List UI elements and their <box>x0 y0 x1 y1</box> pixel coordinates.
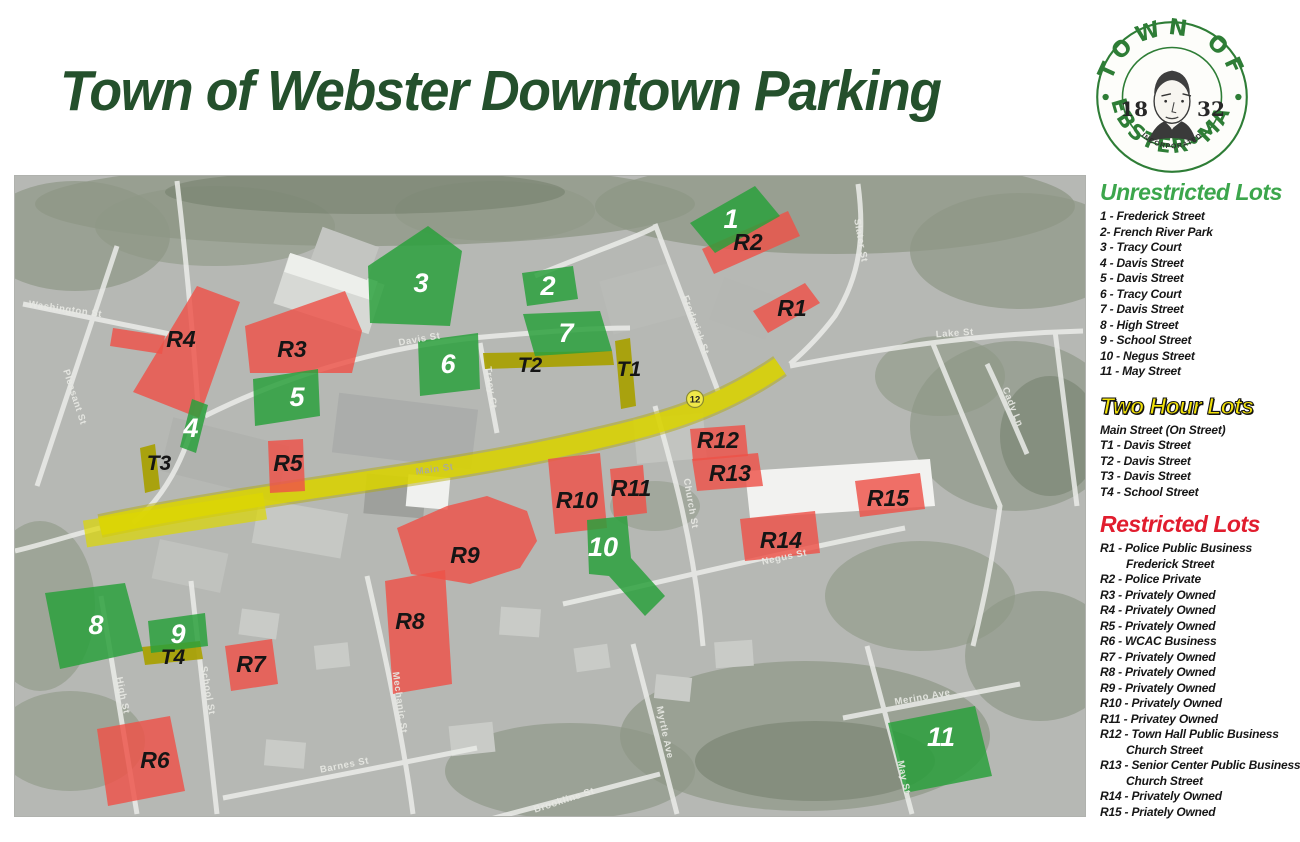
route-12-number: 12 <box>690 395 701 406</box>
seal-year-left: 18 <box>1120 97 1148 121</box>
lot-label-6: 6 <box>440 349 456 379</box>
legend-item: R11 - Privatey Owned <box>1100 712 1298 728</box>
aerial-parking-map: Main St Davis St Tracy Ct Frederick St S… <box>15 176 1085 816</box>
legend-item: 6 - Tracy Court <box>1100 287 1298 303</box>
town-seal-svg: TOWN OF WEBSTER•MASS 18 32 INCORPOR <box>1092 18 1252 176</box>
legend-item: R2 - Police Private <box>1100 572 1298 588</box>
legend-two-hour: Two Hour Lots Main Street (On Street) T1… <box>1100 394 1298 501</box>
lot-label-t3: T3 <box>147 452 172 475</box>
legend-item: 9 - School Street <box>1100 333 1298 349</box>
lot-label-r11: R11 <box>611 475 652 501</box>
lot-label-r14: R14 <box>760 527 802 553</box>
legend-item: R4 - Privately Owned <box>1100 603 1298 619</box>
town-seal-logo: TOWN OF WEBSTER•MASS 18 32 INCORPOR <box>1092 18 1252 176</box>
lot-label-9: 9 <box>170 619 185 649</box>
legend-unrestricted: Unrestricted Lots 1 - Frederick Street 2… <box>1100 180 1298 380</box>
parking-poster: Town of Webster Downtown Parking TOWN OF… <box>0 0 1300 842</box>
legend-item: R7 - Privately Owned <box>1100 650 1298 666</box>
legend-item: 8 - High Street <box>1100 318 1298 334</box>
legend-item: 2- French River Park <box>1100 225 1298 241</box>
legend-item: Main Street (On Street) <box>1100 423 1298 439</box>
lot-label-3: 3 <box>413 268 428 298</box>
lot-label-r12: R12 <box>697 427 739 453</box>
legend-item: T3 - Davis Street <box>1100 469 1298 485</box>
lot-label-r15: R15 <box>867 485 910 511</box>
lot-label-r4: R4 <box>166 326 196 352</box>
lot-label-t2: T2 <box>518 354 543 377</box>
legend-item: R12 - Town Hall Public BusinessChurch St… <box>1100 727 1298 758</box>
legend-item: 7 - Davis Street <box>1100 302 1298 318</box>
lot-label-8: 8 <box>88 610 103 640</box>
legend-restricted: Restricted Lots R1 - Police Public Busin… <box>1100 512 1298 820</box>
legend-item: 3 - Tracy Court <box>1100 240 1298 256</box>
lot-label-11: 11 <box>927 722 955 752</box>
legend-title-unrestricted: Unrestricted Lots <box>1100 180 1298 205</box>
legend-item: R15 - Priately Owned <box>1100 805 1298 821</box>
lot-label-2: 2 <box>539 271 555 301</box>
legend-restricted-list: R1 - Police Public BusinessFrederick Str… <box>1100 541 1298 820</box>
legend-item: R13 - Senior Center Public BusinessChurc… <box>1100 758 1298 789</box>
legend-item: 11 - May Street <box>1100 364 1298 380</box>
legend-title-restricted: Restricted Lots <box>1100 512 1298 537</box>
legend-item: R14 - Privately Owned <box>1100 789 1298 805</box>
lot-label-r5: R5 <box>273 450 304 476</box>
lot-label-r3: R3 <box>277 336 307 362</box>
legend-item: R8 - Privately Owned <box>1100 665 1298 681</box>
lot-label-7: 7 <box>558 318 575 348</box>
legend-two-hour-list: Main Street (On Street) T1 - Davis Stree… <box>1100 423 1298 501</box>
legend-item: R1 - Police Public BusinessFrederick Str… <box>1100 541 1298 572</box>
legend-unrestricted-list: 1 - Frederick Street 2- French River Par… <box>1100 209 1298 380</box>
legend-item: 5 - Davis Street <box>1100 271 1298 287</box>
seal-year-right: 32 <box>1197 97 1225 121</box>
seal-right-dot <box>1235 94 1241 100</box>
legend-item: 4 - Davis Street <box>1100 256 1298 272</box>
lot-label-r1: R1 <box>777 295 806 321</box>
map-legend: Unrestricted Lots 1 - Frederick Street 2… <box>1100 180 1298 834</box>
page-title: Town of Webster Downtown Parking <box>60 58 1009 124</box>
legend-item: T2 - Davis Street <box>1100 454 1298 470</box>
lot-label-r10: R10 <box>556 487 598 513</box>
lot-label-r6: R6 <box>140 747 170 773</box>
legend-item: R10 - Privately Owned <box>1100 696 1298 712</box>
legend-item: 1 - Frederick Street <box>1100 209 1298 225</box>
lot-unrestricted-5 <box>253 369 320 426</box>
lot-label-r9: R9 <box>450 542 480 568</box>
lot-label-r2: R2 <box>733 229 763 255</box>
legend-item: T1 - Davis Street <box>1100 438 1298 454</box>
lot-label-5: 5 <box>289 382 305 412</box>
legend-item: 10 - Negus Street <box>1100 349 1298 365</box>
seal-left-dot <box>1102 94 1108 100</box>
lot-label-r13: R13 <box>709 460 751 486</box>
lot-label-r7: R7 <box>236 651 267 677</box>
lot-label-4: 4 <box>182 413 198 443</box>
legend-item: T4 - School Street <box>1100 485 1298 501</box>
lot-label-t1: T1 <box>617 358 642 381</box>
legend-item: R3 - Privately Owned <box>1100 588 1298 604</box>
legend-item: R6 - WCAC Business <box>1100 634 1298 650</box>
lot-label-t4: T4 <box>161 646 186 669</box>
lot-label-10: 10 <box>588 532 618 562</box>
lot-label-r8: R8 <box>395 608 425 634</box>
legend-item: R5 - Privately Owned <box>1100 619 1298 635</box>
legend-item: R9 - Privately Owned <box>1100 681 1298 697</box>
legend-title-two-hour: Two Hour Lots <box>1100 394 1298 419</box>
route-12-badge: 12 <box>687 391 704 408</box>
